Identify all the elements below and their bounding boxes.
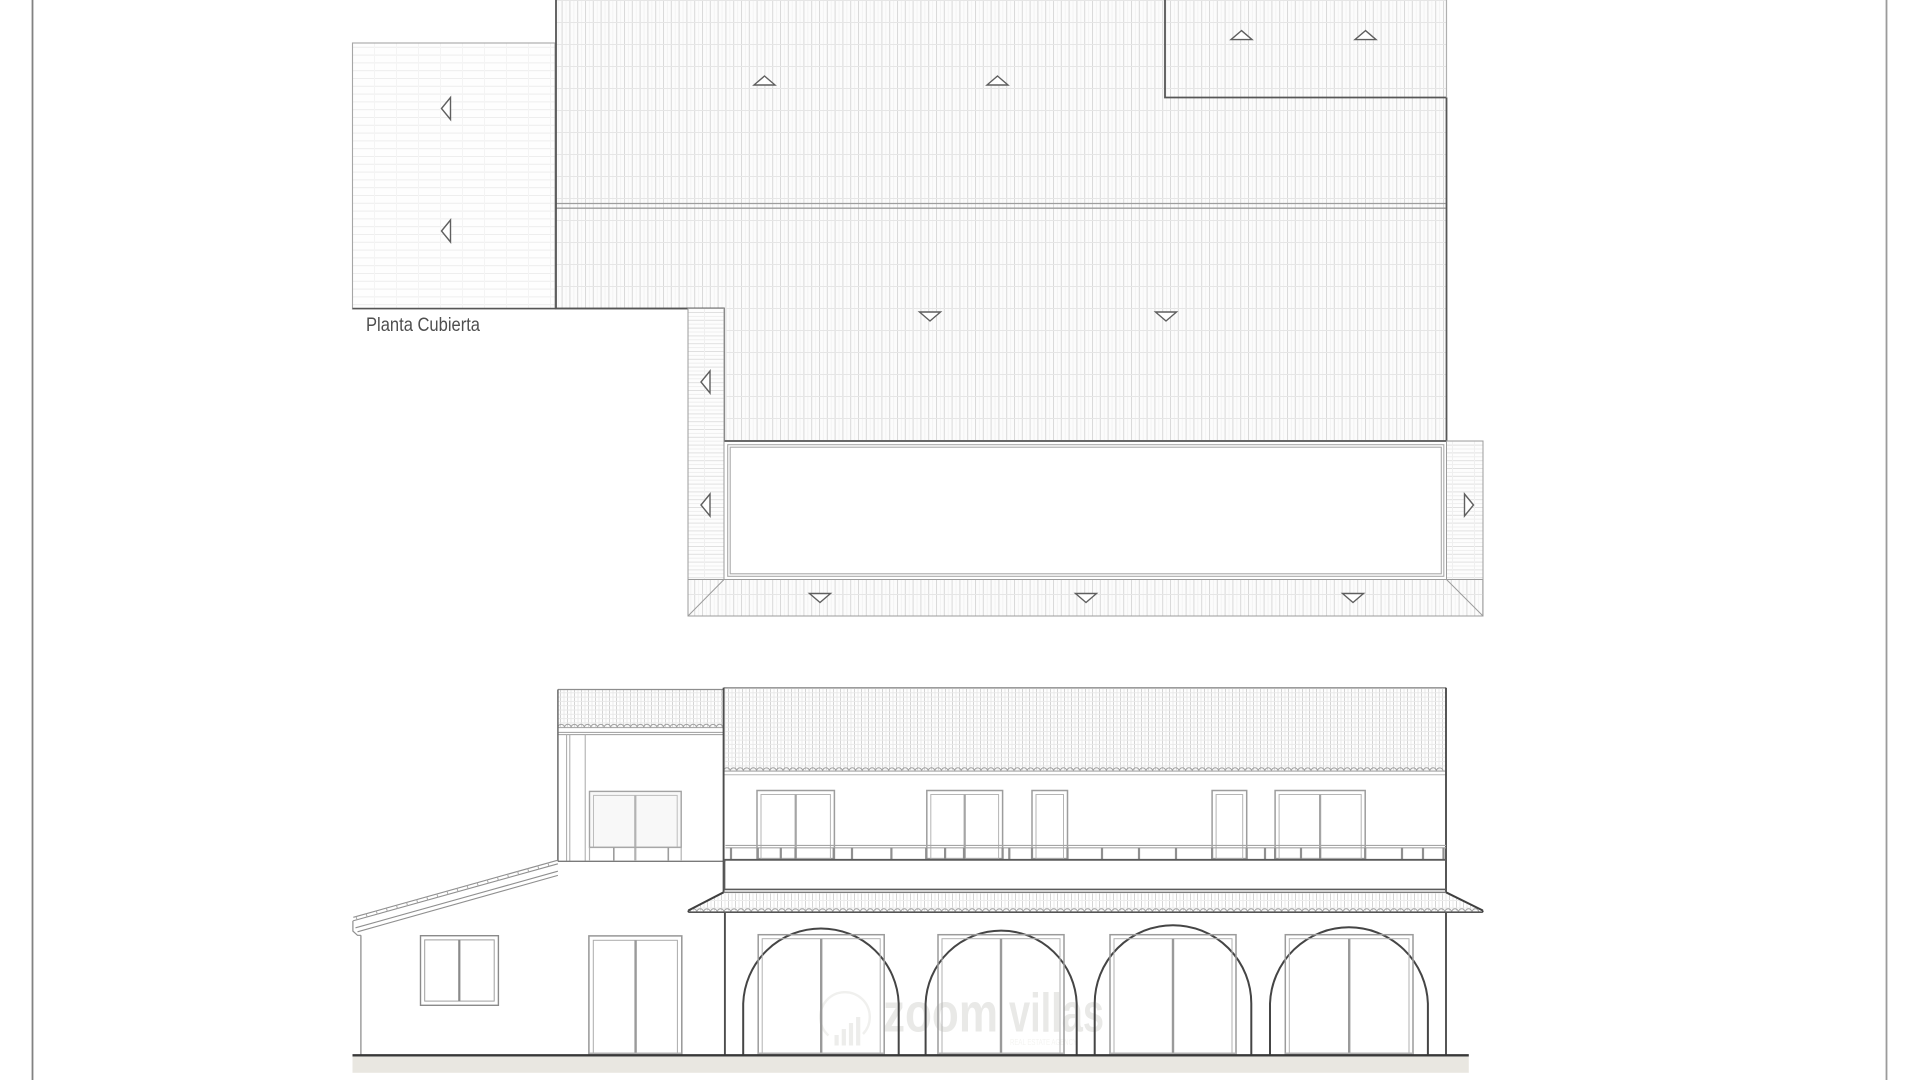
svg-text:Planta Cubierta: Planta Cubierta [366,314,480,336]
svg-text:zoom: zoom [883,981,998,1043]
svg-text:villas: villas [1009,981,1104,1043]
svg-text:REAL ESTATE AGENCY: REAL ESTATE AGENCY [1010,1037,1077,1047]
